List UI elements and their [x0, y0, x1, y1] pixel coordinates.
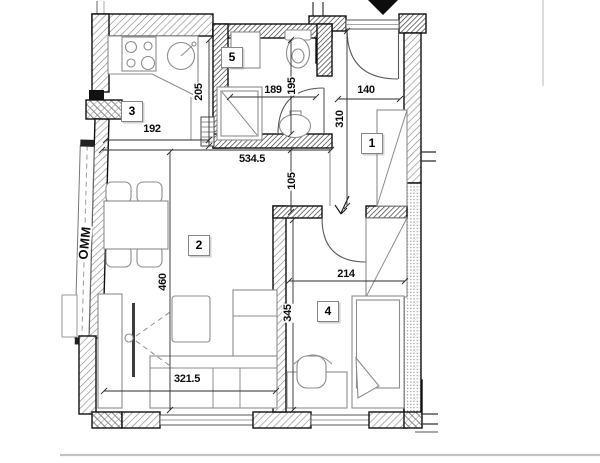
- shower-icon: [217, 87, 262, 140]
- hall-wardrobe: [377, 110, 407, 206]
- window-mark-label: OMM: [77, 225, 93, 261]
- bed: [352, 296, 404, 408]
- room-label-bathroom: 5: [221, 47, 243, 68]
- floor-plan: 1 2 3 4 5 205 192 189 195 140 310 534.5 …: [0, 0, 600, 463]
- dim-bath-depth: 195: [286, 76, 298, 95]
- bedroom-furniture: [287, 218, 407, 408]
- dim-kitchen-width: 192: [142, 123, 161, 135]
- toilet-icon: [285, 30, 311, 68]
- dim-sofa-wall: 321.5: [173, 373, 201, 385]
- stove-icon: [122, 37, 156, 71]
- dim-living-width: 534.5: [238, 153, 266, 165]
- window-bottom-left: [160, 415, 253, 425]
- bedroom-wardrobe: [366, 218, 407, 297]
- basin-icon: [280, 111, 311, 138]
- bedroom-door-swing: [322, 218, 367, 262]
- dim-entry-width: 140: [356, 84, 375, 96]
- sofa: [150, 290, 277, 408]
- window-bottom-right: [311, 415, 369, 425]
- room-label-living: 2: [188, 235, 210, 256]
- dim-bath-width: 189: [263, 84, 282, 96]
- dim-passage-width: 105: [286, 171, 298, 190]
- room-label-bedroom: 4: [317, 301, 339, 322]
- dining-table: [104, 182, 168, 267]
- dim-kitchen-depth: 205: [193, 82, 205, 101]
- dim-bedroom-width: 214: [336, 268, 355, 280]
- entrance-threshold: [346, 20, 399, 29]
- entrance-door-swing: [347, 29, 399, 79]
- room-label-hall: 1: [361, 133, 383, 154]
- dim-hall-depth: 310: [334, 109, 346, 128]
- coffee-table: [172, 296, 210, 342]
- entrance-marker-icon: [368, 0, 398, 15]
- dim-bedroom-depth: 345: [282, 303, 294, 322]
- room-label-kitchen: 3: [121, 101, 143, 122]
- dim-living-depth: 460: [157, 272, 169, 291]
